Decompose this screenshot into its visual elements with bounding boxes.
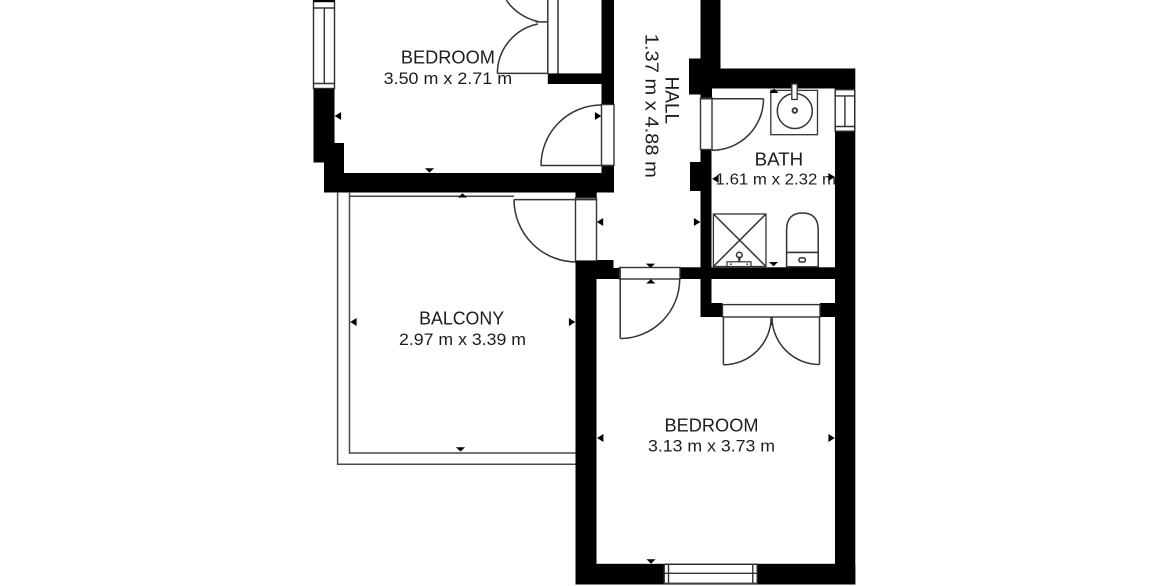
- svg-text:1.37 m x 4.88 m: 1.37 m x 4.88 m: [641, 34, 661, 178]
- svg-text:BALCONY: BALCONY: [419, 308, 504, 329]
- svg-text:BATH: BATH: [755, 149, 804, 170]
- svg-text:3.13 m x 3.73 m: 3.13 m x 3.73 m: [648, 437, 775, 455]
- svg-text:1.61 m x 2.32 m: 1.61 m x 2.32 m: [716, 172, 837, 189]
- svg-text:3.50 m x 2.71 m: 3.50 m x 2.71 m: [384, 70, 513, 88]
- svg-text:HALL: HALL: [660, 77, 681, 125]
- svg-text:BEDROOM: BEDROOM: [401, 47, 495, 68]
- svg-text:BEDROOM: BEDROOM: [665, 414, 759, 435]
- svg-text:2.97 m x 3.39 m: 2.97 m x 3.39 m: [399, 331, 526, 349]
